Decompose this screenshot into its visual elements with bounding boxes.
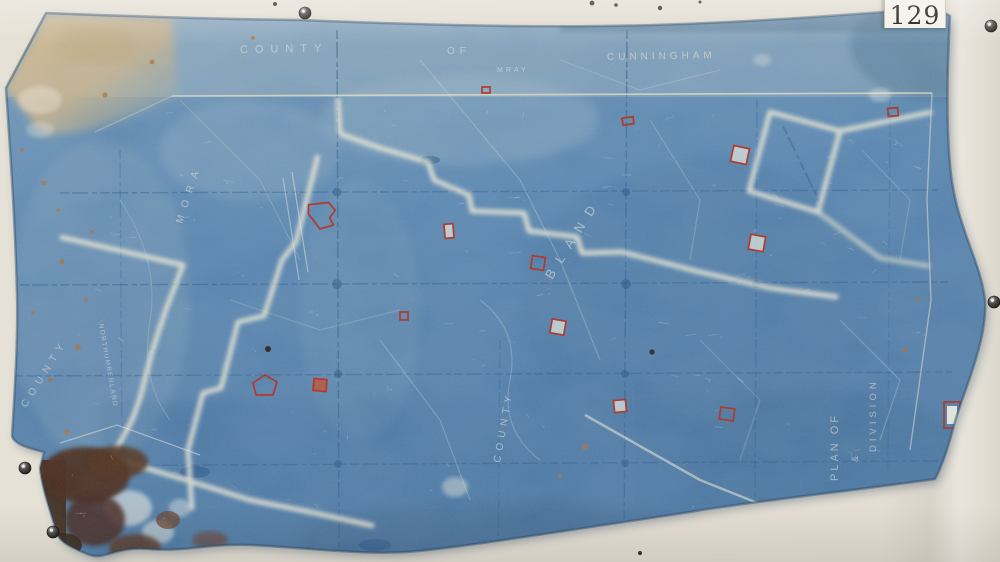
header-faint-note: MRAY — [497, 67, 529, 74]
map-sheet: COUNTY OF CUNNINGHAM MRAY COUNTY MORA NO… — [0, 0, 1000, 562]
town-marker — [748, 234, 765, 251]
push-pin — [988, 296, 1000, 308]
catalog-number-label: 129 — [884, 0, 946, 28]
town-marker — [550, 319, 566, 335]
push-pin — [47, 526, 59, 538]
archive-photo: COUNTY OF CUNNINGHAM MRAY COUNTY MORA NO… — [0, 0, 1000, 562]
header-county-word: COUNTY — [240, 42, 329, 56]
town-marker — [444, 224, 454, 239]
header-county-name: CUNNINGHAM — [607, 50, 716, 63]
town-marker — [313, 378, 327, 391]
town-marker — [731, 146, 750, 165]
title-block-line1: PLAN OF — [829, 413, 841, 481]
title-block-line3: DIVISION — [868, 378, 879, 452]
grain-texture — [0, 0, 1000, 562]
header-of-word: OF — [447, 46, 471, 57]
blueprint-map: COUNTY OF CUNNINGHAM MRAY COUNTY MORA NO… — [0, 0, 1000, 562]
push-pin — [299, 7, 311, 19]
push-pin — [19, 462, 31, 474]
town-marker — [613, 399, 626, 412]
push-pin — [985, 20, 997, 32]
title-block-line2: & — [850, 456, 860, 462]
